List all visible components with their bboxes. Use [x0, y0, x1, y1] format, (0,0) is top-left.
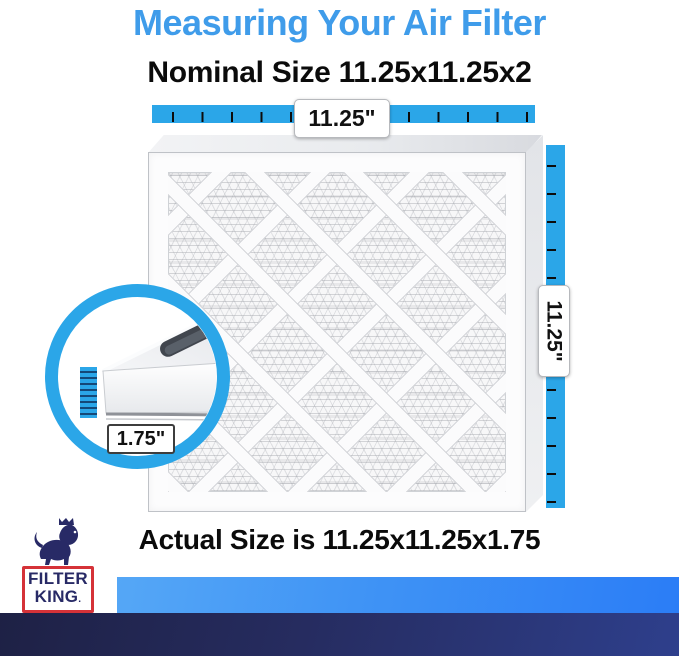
actual-size-heading: Actual Size is 11.25x11.25x1.75 [0, 521, 679, 559]
filter-king-lion-icon [28, 516, 84, 566]
nominal-size-heading: Nominal Size 11.25x11.25x2 [0, 54, 679, 92]
width-measurement-label: 11.25" [294, 99, 390, 138]
logo-line2: KING. [35, 588, 82, 609]
depth-mini-ruler [80, 367, 97, 418]
height-measurement-text: 11.25" [542, 300, 566, 361]
logo-line1: FILTER [28, 570, 88, 588]
page-title: Measuring Your Air Filter [0, 0, 679, 46]
logo-suffix: . [78, 594, 81, 605]
footer-blue-bar [117, 577, 679, 613]
height-measurement-label: 11.25" [538, 285, 570, 377]
infographic-canvas: Measuring Your Air Filter Nominal Size 1… [0, 0, 679, 656]
footer-navy-bar [0, 613, 679, 656]
depth-measurement-label: 1.75" [107, 424, 175, 454]
filter-king-wordmark: FILTER KING. [22, 566, 94, 613]
